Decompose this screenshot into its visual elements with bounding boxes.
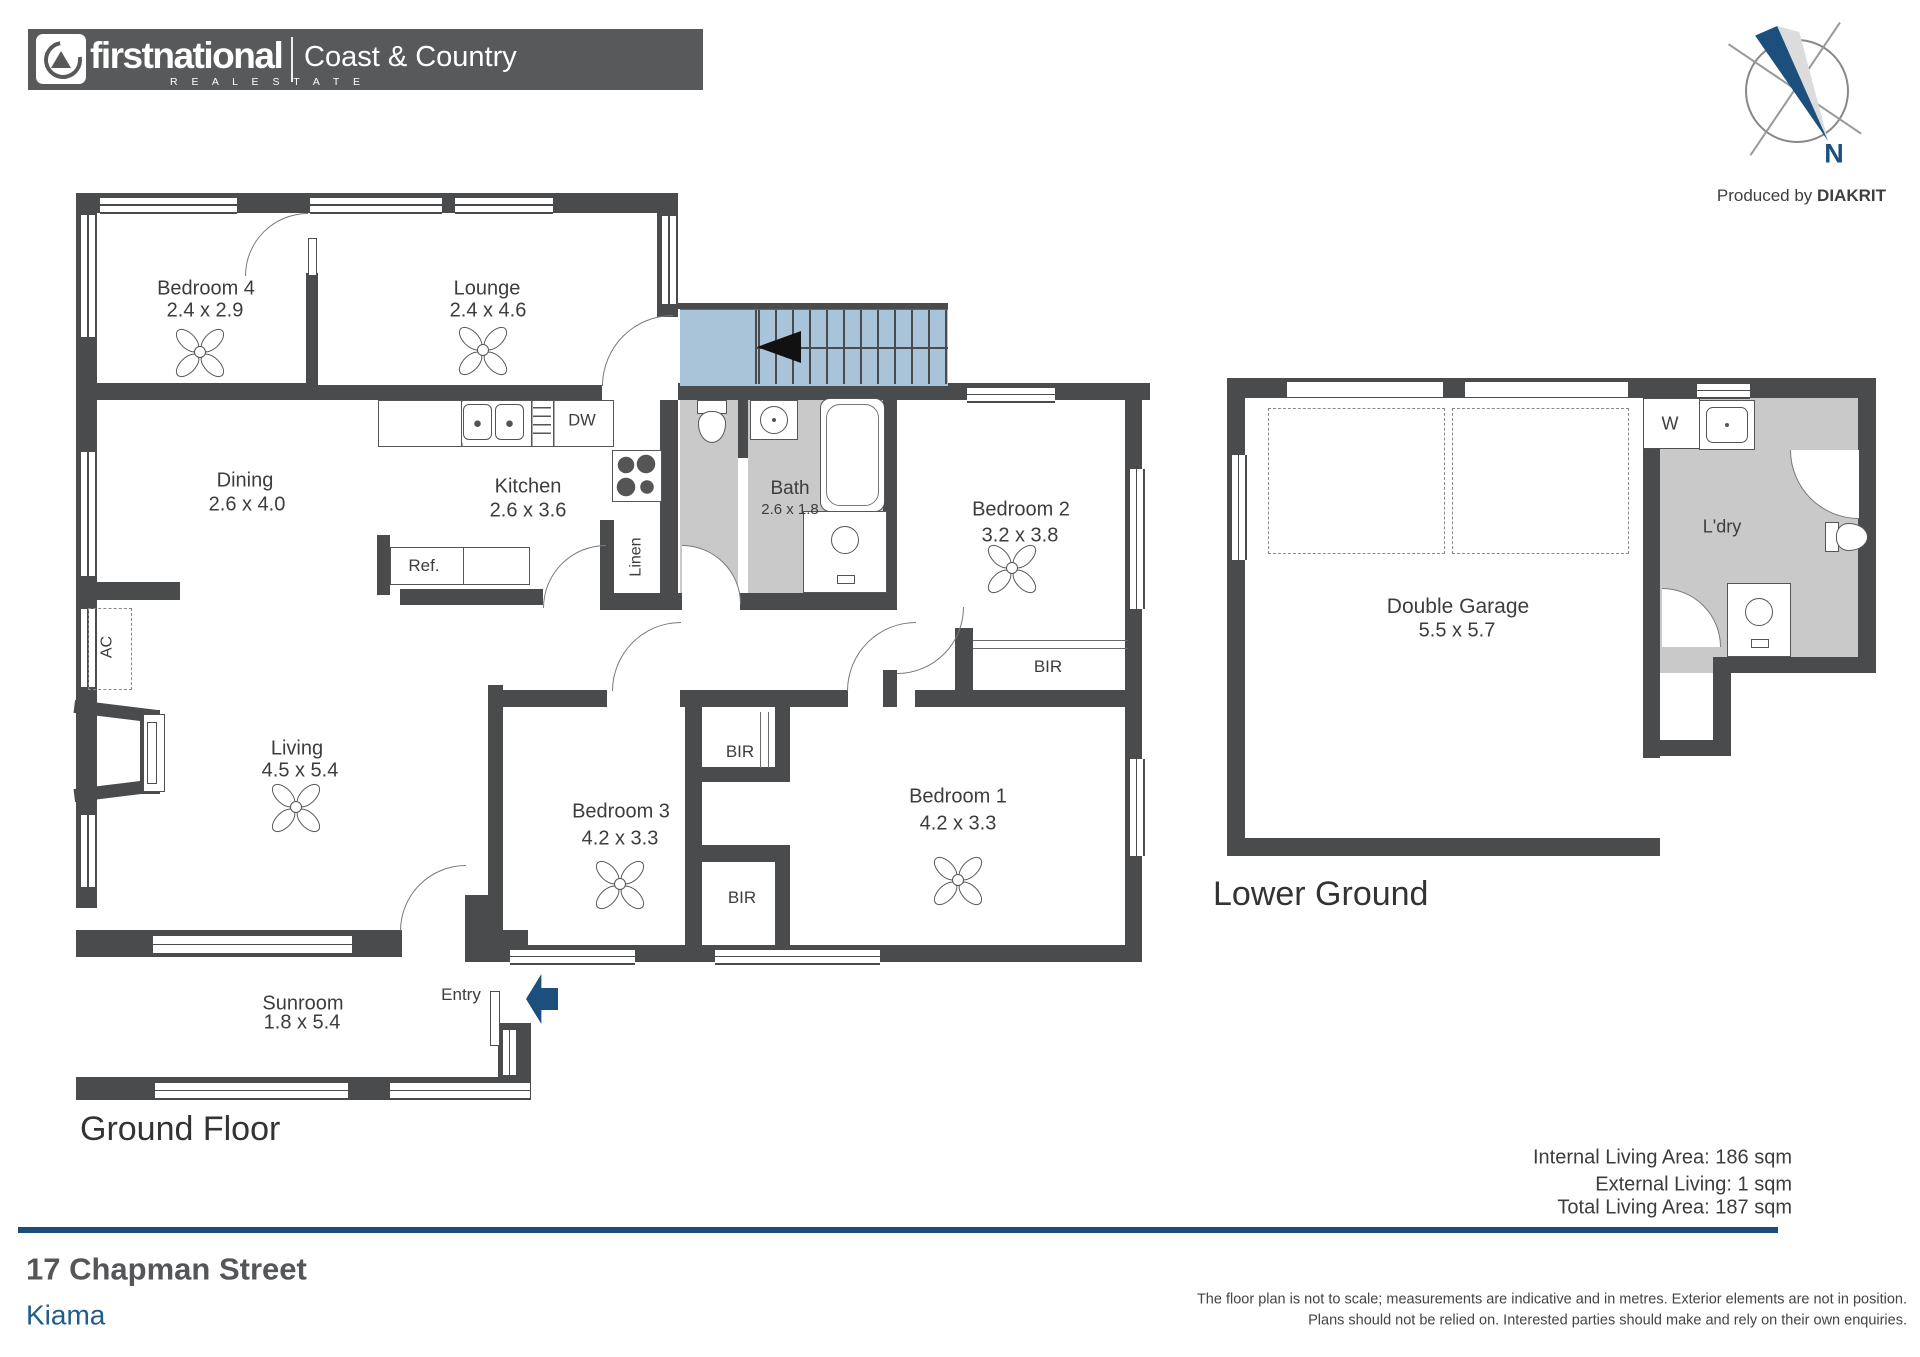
door-arc [543,545,606,608]
label-bir-upper: BIR [726,743,754,761]
thin-line [1465,379,1628,382]
window [501,1030,518,1075]
wall [76,383,318,400]
wall [306,273,318,383]
label-dining-dims: 2.6 x 4.0 [209,495,286,516]
window [510,948,635,965]
label-ac: AC [100,636,117,658]
label-bedroom-1: Bedroom 1 [909,787,1007,808]
floor-plan-page: firstnational R E A L E S T A T E Coast … [0,0,1920,1357]
label-double-garage-dims: 5.5 x 5.7 [1419,621,1496,642]
wall [702,845,790,862]
robe-rail [760,712,769,768]
window [1128,759,1145,856]
brand-name: firstnational [90,35,282,77]
label-kitchen: Kitchen [495,477,562,498]
brand-subtitle: R E A L E S T A T E [170,76,366,88]
label-lounge: Lounge [454,279,521,300]
label-bath: Bath [770,479,809,499]
label-bedroom-1-dims: 4.2 x 3.3 [920,814,997,835]
wall [1643,740,1731,756]
fixture-ltub [1699,400,1755,450]
door-arc [612,622,681,691]
disclaimer-line-2: Plans should not be relied on. Intereste… [1308,1313,1907,1328]
wall [600,593,682,610]
dashed-outline [1452,408,1629,554]
robe-rail [973,640,1128,649]
fixture-basin [750,400,798,440]
label-dining: Dining [217,471,274,492]
label-entry: Entry [441,986,481,1004]
window [79,815,97,887]
window [153,934,352,955]
label-bir-lower: BIR [728,889,756,907]
wall [738,400,748,458]
internal-living-area: Internal Living Area: 186 sqm [1533,1148,1792,1169]
label-bedroom-3: Bedroom 3 [572,802,670,823]
wall [377,535,390,595]
label-bedroom-3-dims: 4.2 x 3.3 [582,829,659,850]
label-w: W [1662,415,1679,434]
label-bath-dims: 2.6 x 1.8 [761,502,819,518]
lower-ground-title: Lower Ground [1213,877,1428,913]
wall [915,690,1142,707]
fixture-drain [533,407,551,438]
label-bedroom-4: Bedroom 4 [157,279,255,300]
label-bedroom-4-dims: 2.4 x 2.9 [167,301,244,322]
ceiling-fan-icon [264,775,328,839]
fixture-tub [820,398,885,512]
wall [685,702,702,945]
office-name: Coast & Country [304,41,517,74]
window [79,452,97,576]
ceiling-fan-icon [451,318,515,382]
wall [775,862,790,945]
window [967,386,1055,403]
window [1230,455,1247,560]
fixture-shower [1727,583,1791,657]
ceiling-fan-icon [168,320,232,384]
label-sunroom-dims: 1.8 x 5.4 [264,1013,341,1034]
external-living-area: External Living: 1 sqm [1595,1175,1792,1196]
cabinet-box [147,722,157,784]
brand-header-bar: firstnational R E A L E S T A T E Coast … [28,29,703,90]
fixture-shower [803,511,887,593]
label-living-dims: 4.5 x 5.4 [262,761,339,782]
wall [1643,398,1660,758]
door-arc [847,622,916,691]
window [155,1081,348,1100]
first-national-logo-icon [36,34,86,84]
wall [740,593,897,610]
thin-line [1287,379,1443,382]
label-living: Living [271,739,323,760]
garage-opening [1465,381,1628,397]
wall [318,385,602,400]
producer-credit: Produced by DIAKRIT [1717,186,1886,206]
window [390,1081,530,1100]
window [79,215,97,337]
label-lounge-dims: 2.4 x 4.6 [450,301,527,322]
label-bir-bed2: BIR [1034,658,1062,676]
window [1128,469,1145,609]
cabinet-box [308,238,317,276]
ground-floor-title: Ground Floor [80,1112,280,1148]
ceiling-fan-icon [588,852,652,916]
wall [955,628,973,704]
window [100,196,237,214]
window [660,216,678,304]
ceiling-fan-icon [926,848,990,912]
fixture-toilet [1825,519,1871,555]
label-dw: DW [568,412,596,429]
wall [1227,378,1245,856]
cabinet-box [490,991,500,1046]
disclaimer-line-1: The floor plan is not to scale; measurem… [1197,1292,1907,1307]
garage-opening [1287,381,1443,397]
wall [1227,838,1660,856]
label-ldry: L'dry [1703,518,1741,537]
wall [488,685,503,962]
door-arc [602,315,673,386]
door-arc [245,213,308,276]
fixture-toilet [694,400,730,446]
window [1697,382,1750,399]
label-double-garage: Double Garage [1387,596,1529,618]
dashed-outline [1268,408,1445,554]
address-street: 17 Chapman Street [26,1254,307,1287]
brand-divider [291,37,293,82]
wall [488,690,607,707]
total-living-area: Total Living Area: 187 sqm [1557,1198,1792,1219]
wall [702,690,848,707]
wall [702,767,790,782]
label-ref: Ref. [408,557,439,575]
fixture-stove [612,450,662,502]
wall [660,400,678,593]
door-arc [400,865,466,931]
window [455,196,553,214]
wall [400,589,543,605]
wall [76,582,180,600]
wall [1713,657,1876,673]
window [310,196,442,214]
compass-north-label: N [1824,139,1844,170]
address-suburb: Kiama [26,1300,105,1329]
window [715,948,880,965]
fixture-sink2 [462,402,526,443]
label-bedroom-2: Bedroom 2 [972,500,1070,521]
footer-divider [18,1227,1778,1233]
label-bedroom-2-dims: 3.2 x 3.8 [982,526,1059,547]
label-linen: Linen [629,537,646,576]
entry-arrow [526,974,558,1024]
label-kitchen-dims: 2.6 x 3.6 [490,501,567,522]
